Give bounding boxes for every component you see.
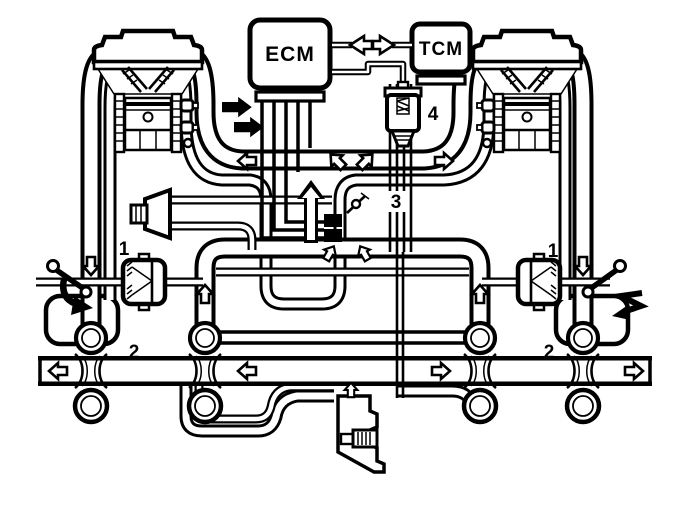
ecm-connector-base	[256, 92, 324, 101]
datalink-icon	[332, 36, 412, 54]
pressure-regulator-funnel	[131, 190, 170, 238]
callout-4: 4	[428, 104, 439, 125]
callout-1-right: 1	[548, 241, 559, 262]
pipe-sump-return	[398, 391, 471, 404]
tcm-module: TCM	[412, 24, 470, 84]
reed-valve-right	[518, 254, 560, 310]
ecm-module: ECM	[250, 20, 330, 101]
reed-valve-left	[123, 254, 165, 310]
ecm-label: ECM	[265, 43, 315, 66]
signal-arrow-icon	[222, 97, 252, 117]
tcm-sensor-wire	[332, 64, 403, 88]
engine-control-system-diagram: ECM TCM	[0, 0, 674, 512]
callout-2-left: 2	[129, 342, 140, 363]
callout-3: 3	[391, 192, 402, 213]
callout-2-right: 2	[544, 342, 555, 363]
tcm-connector-base	[417, 76, 465, 84]
callout-1-left: 1	[119, 239, 130, 260]
bolt-sensor-icon	[347, 193, 369, 213]
diagram-canvas: ECM TCM	[0, 0, 674, 512]
signal-arrow-icon	[234, 117, 264, 137]
tcm-label: TCM	[419, 39, 463, 60]
oil-pan	[338, 396, 384, 472]
